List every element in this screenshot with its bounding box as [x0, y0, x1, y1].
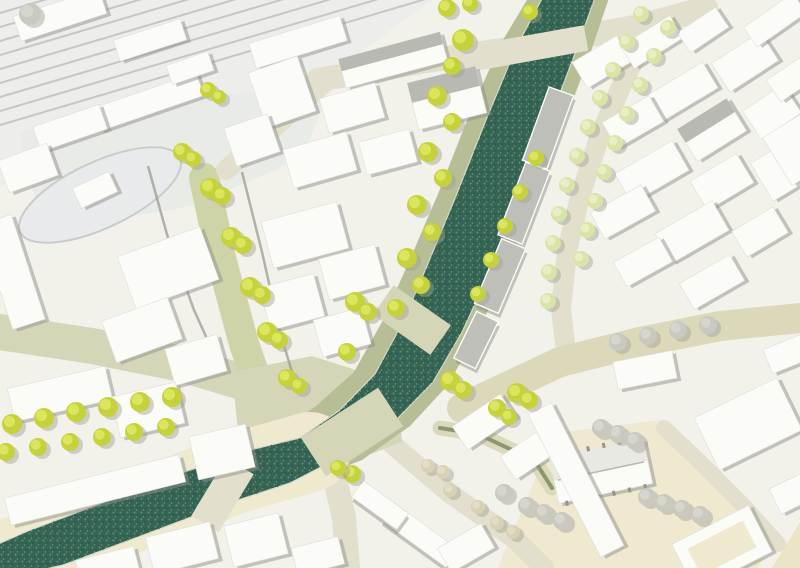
tree-highlight — [445, 115, 455, 125]
tree-highlight — [132, 394, 143, 405]
tree-highlight — [491, 517, 499, 525]
tree-highlight — [332, 462, 341, 471]
tree-highlight — [31, 440, 41, 450]
tree-highlight — [420, 144, 431, 155]
tree-highlight — [503, 411, 512, 420]
tree-highlight — [575, 253, 584, 262]
tree-highlight — [671, 323, 681, 333]
tree-highlight — [444, 484, 452, 492]
tree-highlight — [414, 278, 424, 288]
tree-highlight — [223, 229, 234, 240]
tree-highlight — [609, 137, 618, 146]
tree-highlight — [100, 399, 111, 410]
tree-highlight — [514, 186, 523, 195]
site-plan-rendering — [0, 0, 800, 568]
tree-highlight — [571, 150, 580, 159]
tree-highlight — [440, 1, 450, 11]
tree-highlight — [347, 294, 358, 305]
tree-highlight — [641, 329, 651, 339]
tree-highlight — [640, 490, 650, 500]
tree-highlight — [589, 195, 598, 204]
tree-highlight — [445, 59, 455, 69]
tree-highlight — [127, 425, 137, 435]
tree-highlight — [236, 238, 246, 248]
tree-highlight — [621, 36, 630, 45]
tree-highlight — [634, 79, 643, 88]
tree-highlight — [594, 92, 603, 101]
tree-highlight — [437, 466, 445, 474]
masterplan-canvas — [0, 0, 800, 568]
tree-highlight — [621, 108, 630, 117]
tree-highlight — [242, 279, 253, 290]
tree-highlight — [399, 250, 410, 261]
tree-highlight — [542, 295, 551, 304]
tree-highlight — [213, 91, 221, 99]
tree-highlight — [436, 171, 446, 181]
tree-highlight — [255, 288, 265, 298]
tree-highlight — [555, 514, 565, 524]
tree-highlight — [215, 189, 225, 199]
tree-highlight — [361, 305, 371, 315]
tree-highlight — [611, 335, 621, 345]
tree-highlight — [187, 153, 196, 162]
tree-highlight — [454, 31, 466, 43]
tree-highlight — [594, 421, 604, 431]
tree-highlight — [442, 373, 453, 384]
tree-highlight — [425, 225, 435, 235]
tree-highlight — [648, 50, 657, 59]
tree-highlight — [607, 64, 616, 73]
tree-highlight — [497, 486, 507, 496]
tree-highlight — [553, 208, 562, 217]
tree-highlight — [543, 266, 552, 275]
tree-highlight — [598, 166, 607, 175]
tree-highlight — [422, 460, 430, 468]
tree-highlight — [202, 180, 213, 191]
tree-highlight — [524, 6, 533, 15]
tree-highlight — [472, 288, 481, 297]
tree-highlight — [340, 345, 350, 355]
tree-highlight — [389, 301, 399, 311]
tree-highlight — [561, 179, 570, 188]
tree-highlight — [675, 502, 685, 512]
tree-highlight — [490, 401, 500, 411]
tree-highlight — [582, 121, 591, 130]
tree-highlight — [202, 84, 211, 93]
tree-highlight — [693, 508, 703, 518]
tree-highlight — [4, 416, 15, 427]
tree-highlight — [507, 526, 515, 534]
tree-highlight — [164, 389, 175, 400]
tree-highlight — [499, 220, 508, 229]
tree-highlight — [537, 506, 547, 516]
tree-highlight — [628, 434, 638, 444]
tree-highlight — [259, 324, 270, 335]
tree-highlight — [701, 318, 711, 328]
tree-highlight — [520, 499, 530, 509]
tree-highlight — [95, 430, 105, 440]
tree-highlight — [36, 410, 47, 421]
tree-highlight — [409, 197, 420, 208]
tree-highlight — [280, 371, 290, 381]
tree-highlight — [485, 254, 494, 263]
tree-highlight — [272, 333, 282, 343]
tree-highlight — [611, 427, 621, 437]
tree-highlight — [530, 152, 539, 161]
tree-highlight — [456, 383, 466, 393]
tree-highlight — [175, 145, 185, 155]
tree-highlight — [472, 501, 480, 509]
tree-highlight — [662, 22, 671, 31]
tree-highlight — [159, 420, 169, 430]
tree-highlight — [21, 5, 33, 17]
tree-highlight — [293, 380, 302, 389]
tree-highlight — [581, 224, 590, 233]
tree-highlight — [657, 496, 667, 506]
tree-highlight — [547, 237, 556, 246]
tree-highlight — [63, 435, 73, 445]
tree-highlight — [429, 88, 440, 99]
tree-highlight — [635, 8, 644, 17]
tree-highlight — [68, 404, 79, 415]
tree-highlight — [509, 385, 520, 396]
tree-highlight — [522, 393, 532, 403]
